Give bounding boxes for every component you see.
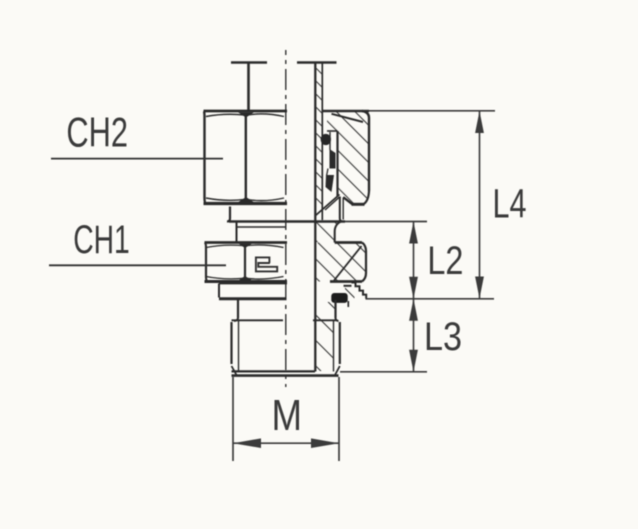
svg-text:L4: L4 [493,181,527,227]
svg-text:L2: L2 [427,239,463,283]
svg-text:CH1: CH1 [73,218,130,262]
svg-text:CH2: CH2 [66,109,128,156]
svg-text:M: M [272,391,303,440]
svg-text:L3: L3 [424,315,462,359]
